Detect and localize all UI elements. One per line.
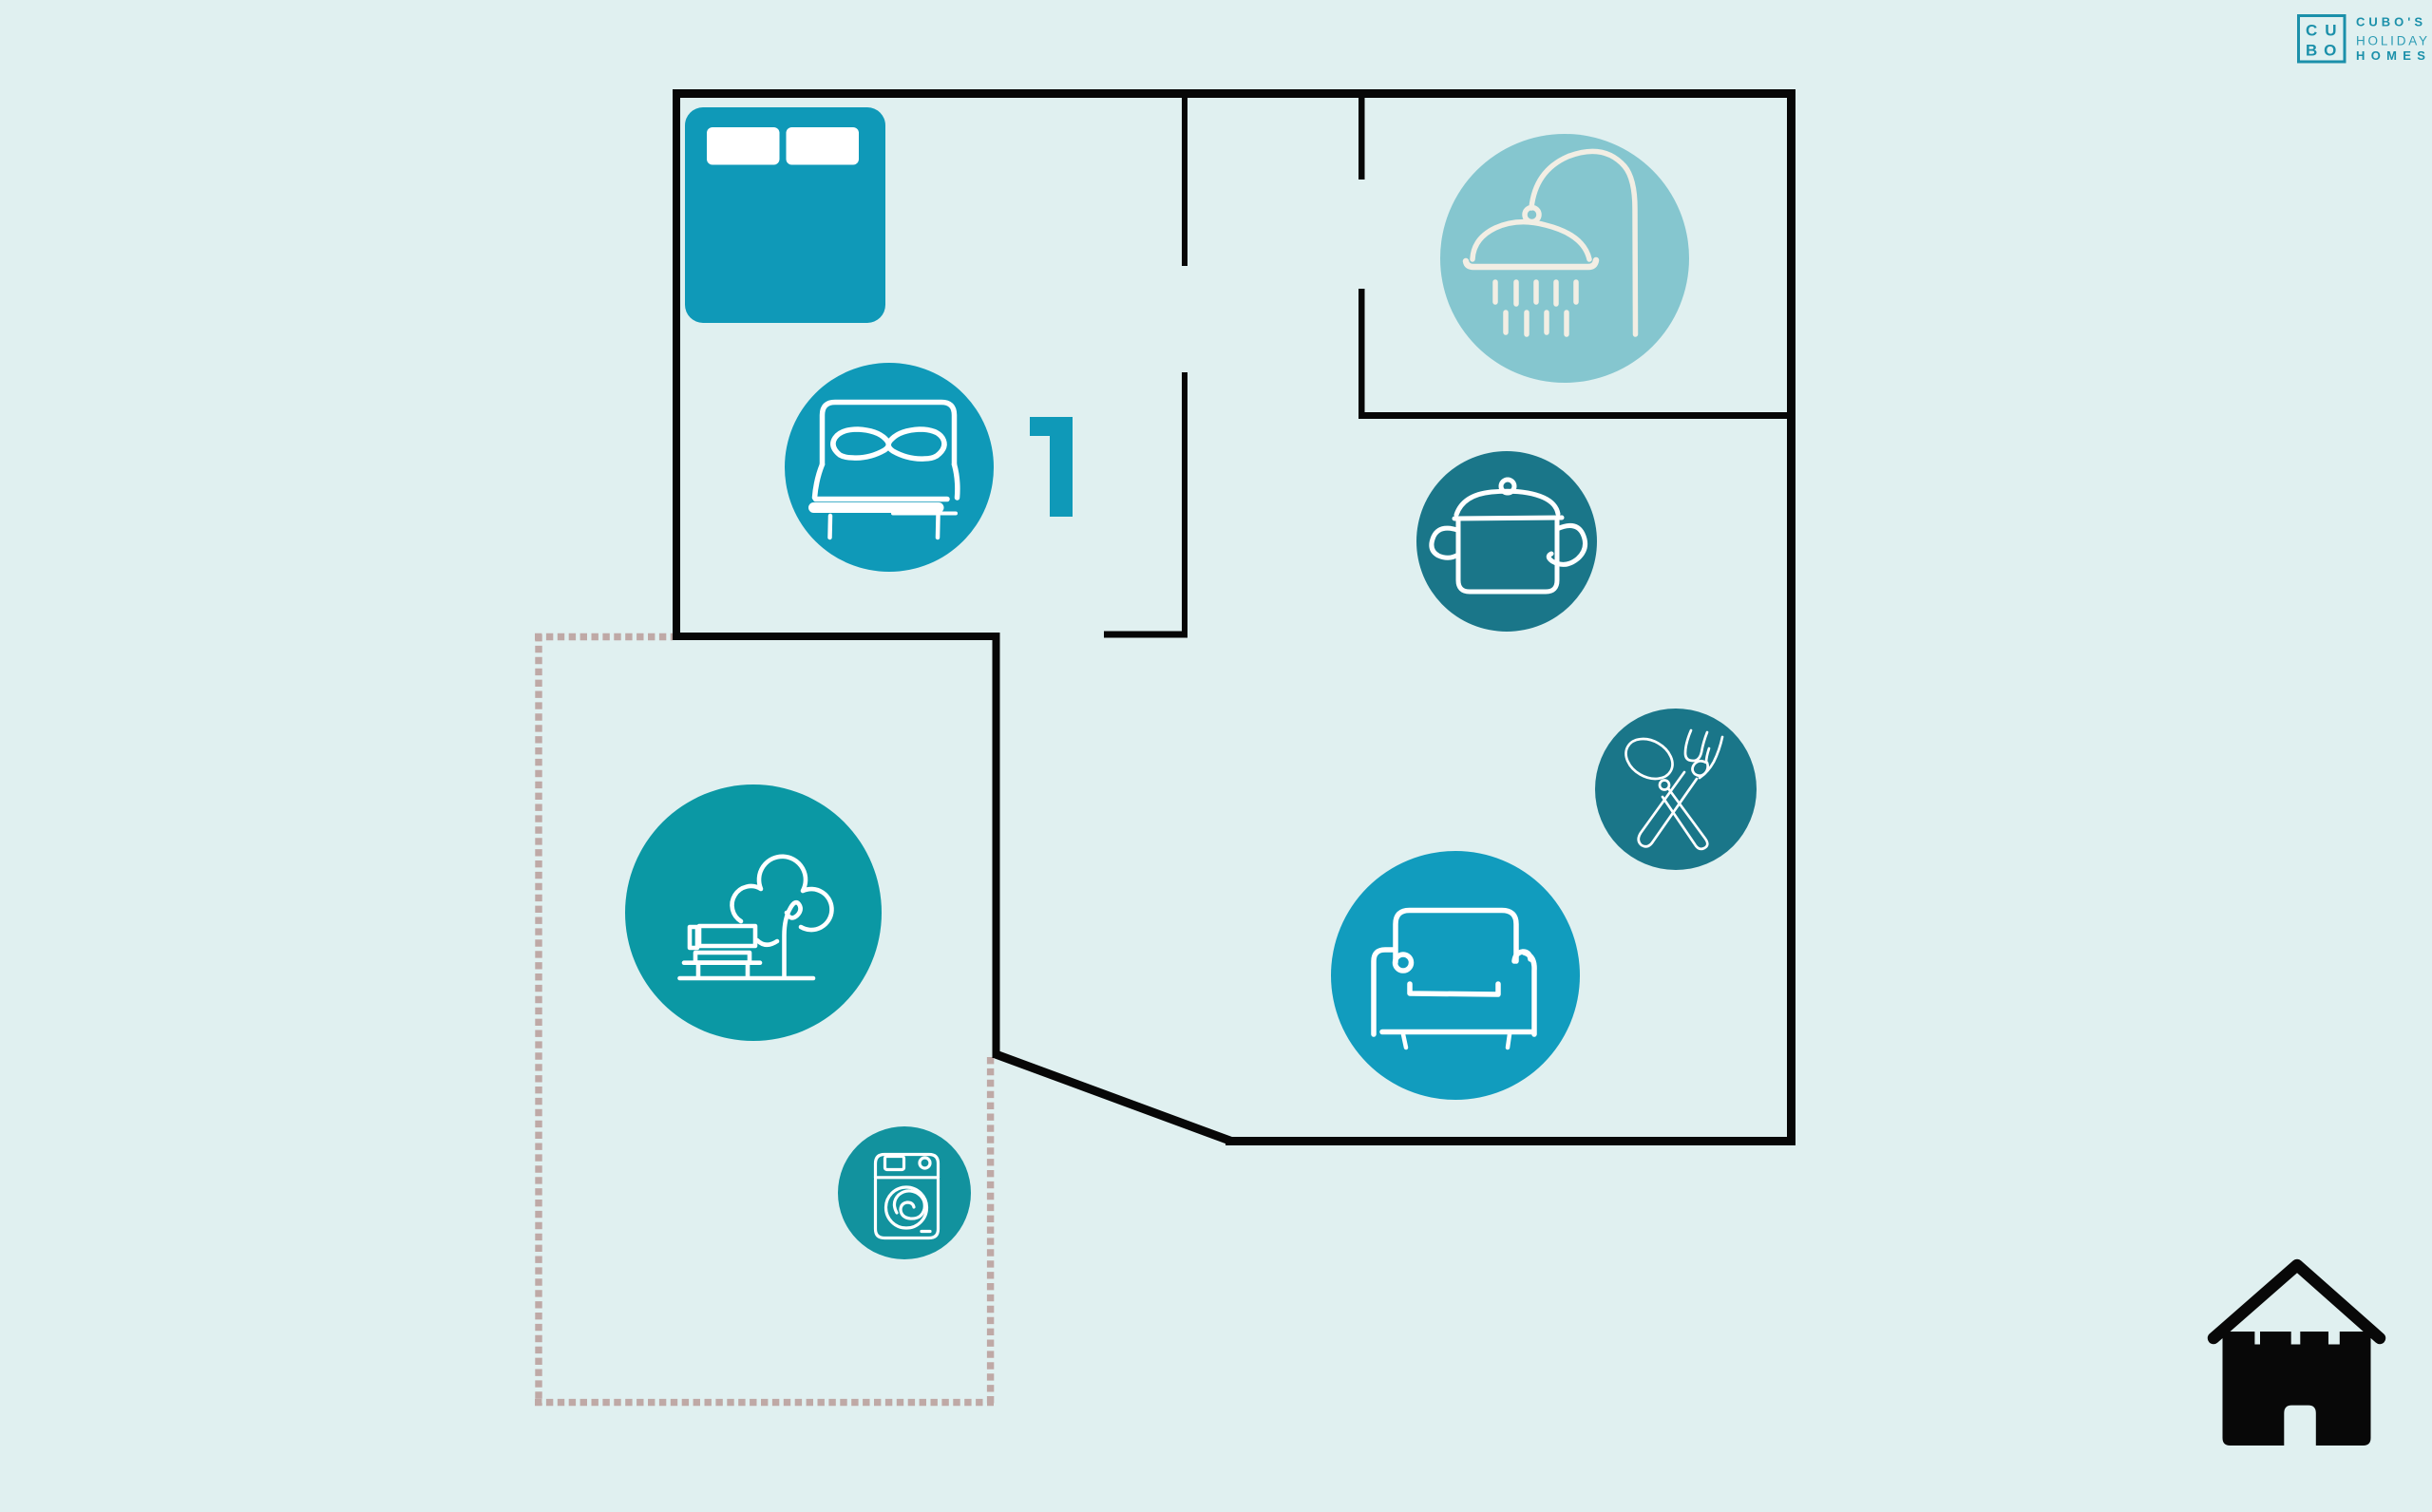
- svg-text:HOMES: HOMES: [2356, 48, 2431, 63]
- svg-text:CUBO'S: CUBO'S: [2356, 15, 2426, 29]
- svg-text:BO: BO: [2306, 42, 2343, 60]
- svg-text:HOLIDAY: HOLIDAY: [2356, 34, 2430, 48]
- svg-text:CU: CU: [2306, 22, 2345, 40]
